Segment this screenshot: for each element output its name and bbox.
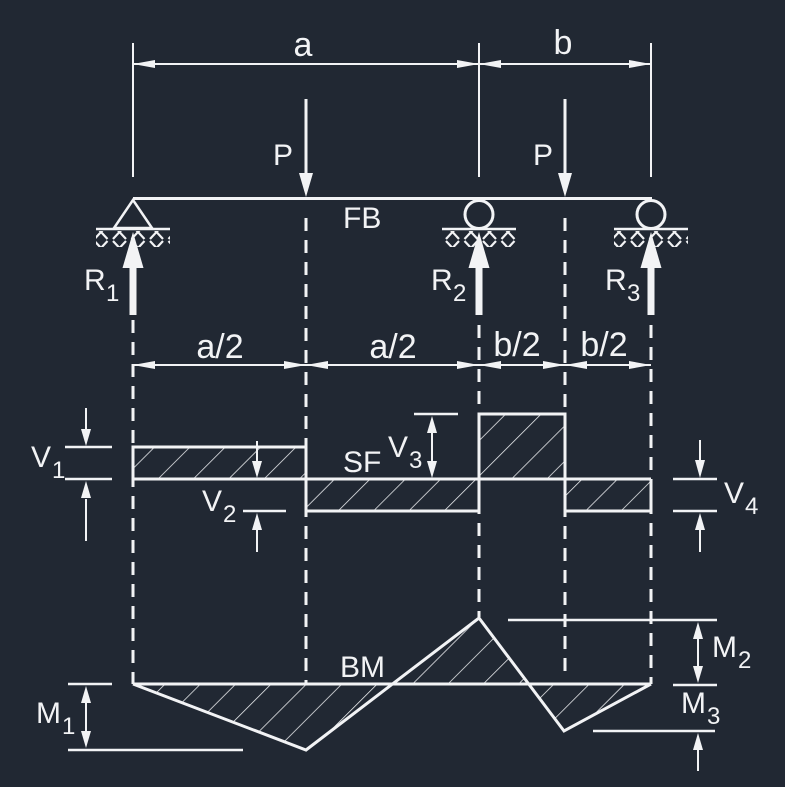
reaction-r3-subscript: 3 [627, 280, 640, 307]
sf-positive-block-1 [133, 447, 306, 479]
dimension-v3: V 3 [388, 414, 458, 478]
bm-label: BM [340, 651, 385, 684]
roller-circle [465, 201, 493, 229]
dim-a-label: a [294, 26, 313, 64]
load-p1-label: P [273, 139, 293, 172]
dim-arrowhead [133, 361, 155, 369]
m1-subscript: 1 [62, 713, 75, 740]
v2-label: V [202, 485, 222, 518]
dim-arrowhead [457, 361, 479, 369]
beam-diagram-canvas: a b P P FB R 1 R [0, 0, 785, 787]
arrowhead [693, 666, 703, 683]
load-p1: P [273, 99, 313, 197]
dimension-m2: M 2 [508, 620, 751, 685]
sf-negative-block-2 [565, 479, 651, 511]
beam-label: FB [343, 202, 381, 235]
m2-subscript: 2 [738, 647, 751, 674]
dim-arrowhead [284, 361, 306, 369]
reaction-r2-label: R [431, 264, 453, 297]
dim-a2-label-2: a/2 [369, 328, 416, 366]
dim-arrowhead [306, 361, 328, 369]
reaction-r2-shaft [476, 267, 483, 315]
reaction-r1-shaft [130, 267, 137, 315]
dim-arrowhead [457, 60, 479, 68]
v4-label: V [724, 477, 744, 510]
reaction-r1-subscript: 1 [106, 280, 119, 307]
sf-positive-block-2 [479, 414, 565, 479]
dim-b2-label-2: b/2 [580, 326, 627, 364]
arrowhead [81, 429, 91, 446]
m3-subscript: 3 [707, 703, 720, 730]
dim-arrowhead [543, 361, 565, 369]
beam: FB [133, 199, 652, 236]
pin-triangle [114, 200, 152, 228]
dim-b2-label-1: b/2 [493, 326, 540, 364]
half-dimension-row: a/2 a/2 b/2 b/2 [133, 326, 651, 369]
v4-subscript: 4 [745, 493, 758, 520]
beam-sf-bm-drawing: a b P P FB R 1 R [0, 0, 785, 787]
arrowhead [81, 731, 91, 748]
dimension-v1: V 1 [31, 408, 112, 541]
sf-label: SF [343, 446, 381, 479]
arrowhead [81, 686, 91, 703]
reaction-r3-shaft [648, 267, 655, 315]
v3-label: V [388, 431, 408, 464]
arrowhead [427, 416, 437, 433]
v1-subscript: 1 [52, 457, 65, 484]
reaction-r3-label: R [605, 264, 627, 297]
v1-label: V [31, 441, 51, 474]
dimension-v4: V 4 [673, 440, 758, 552]
arrowhead [693, 733, 703, 750]
dim-b-label: b [554, 24, 573, 62]
roller-circle [637, 201, 665, 229]
arrowhead [695, 460, 705, 478]
load-p2: P [533, 99, 572, 197]
dim-arrowhead [133, 60, 155, 68]
m1-label: M [36, 697, 61, 730]
arrowhead [81, 481, 91, 498]
arrowhead [252, 513, 262, 530]
m2-label: M [712, 631, 737, 664]
reaction-r1-label: R [84, 264, 106, 297]
dim-arrowhead [629, 361, 651, 369]
load-p2-label: P [533, 139, 553, 172]
dim-arrowhead [479, 60, 501, 68]
top-dimension-row: a b [133, 24, 651, 177]
arrowhead [427, 461, 437, 478]
dim-arrowhead [629, 60, 651, 68]
v2-subscript: 2 [223, 501, 236, 528]
dim-a2-label-1: a/2 [196, 328, 243, 366]
m3-label: M [681, 687, 706, 720]
load-p1-arrowhead [299, 173, 313, 197]
arrowhead [693, 622, 703, 639]
bending-moment-diagram: BM [133, 618, 651, 750]
sf-negative-block-1 [306, 479, 479, 511]
v3-subscript: 3 [409, 447, 422, 474]
load-p2-arrowhead [558, 173, 572, 197]
arrowhead [695, 513, 705, 530]
reaction-r2-subscript: 2 [453, 280, 466, 307]
